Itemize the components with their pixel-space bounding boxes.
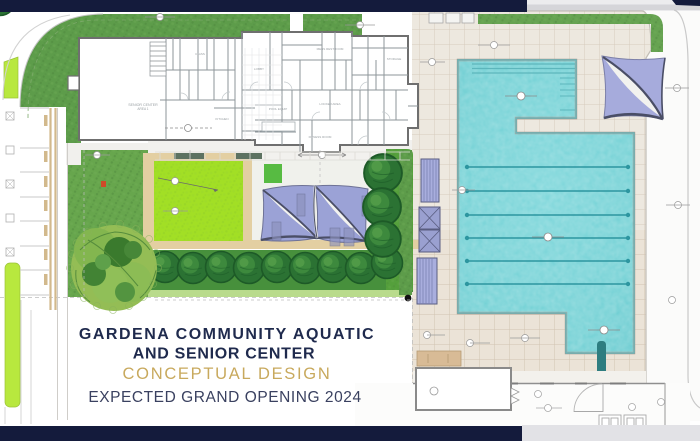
svg-text:KITCHEN: KITCHEN [215, 117, 228, 121]
svg-text:GARDENA COMMUNITY AQUATIC: GARDENA COMMUNITY AQUATIC [79, 326, 375, 343]
svg-text:MENS RESTROOM: MENS RESTROOM [317, 47, 344, 51]
svg-text:LOCKER AREA: LOCKER AREA [319, 102, 340, 106]
svg-text:FITNESS ROOM: FITNESS ROOM [309, 135, 332, 139]
svg-text:AREA 1: AREA 1 [137, 107, 148, 111]
svg-text:LOBBY: LOBBY [254, 67, 264, 71]
svg-text:STORAGE: STORAGE [387, 57, 402, 61]
svg-text:CLASS: CLASS [195, 52, 205, 56]
svg-text:POOL EQUIP: POOL EQUIP [269, 107, 287, 111]
svg-text:CONCEPTUAL DESIGN: CONCEPTUAL DESIGN [123, 365, 332, 383]
svg-text:EXPECTED GRAND OPENING 2024: EXPECTED GRAND OPENING 2024 [88, 389, 361, 406]
svg-text:AND SENIOR CENTER: AND SENIOR CENTER [133, 346, 316, 363]
